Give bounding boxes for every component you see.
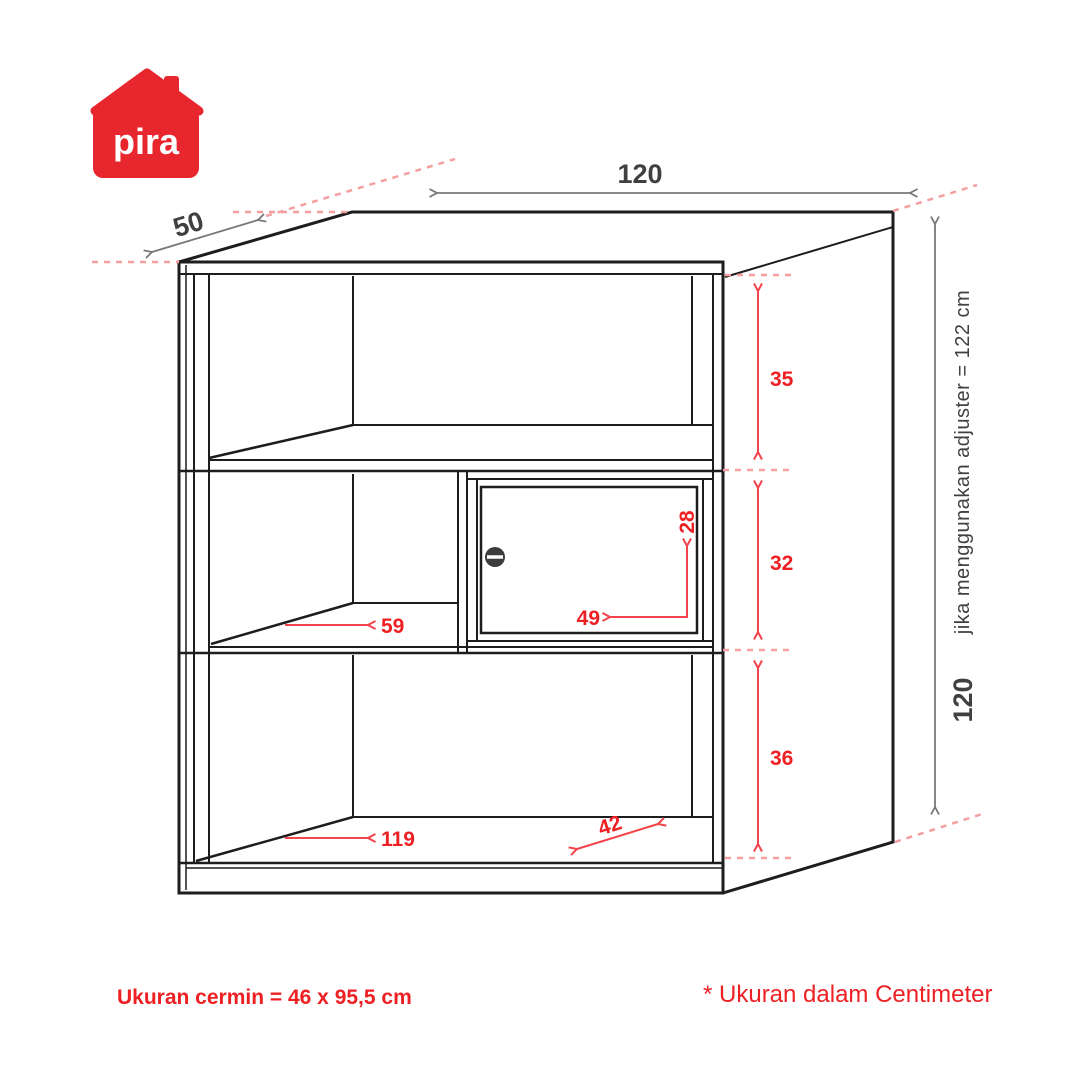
dimension-top-width: 120 xyxy=(437,159,910,193)
side-top-board-line xyxy=(725,227,893,277)
depth-arrow xyxy=(152,220,258,252)
unit-note: * Ukuran dalam Centimeter xyxy=(703,981,992,1009)
dimension-section-32: 32 xyxy=(758,488,793,632)
dimension-door: 49 28 xyxy=(577,510,699,630)
door-width-label: 49 xyxy=(577,607,600,630)
top-width-label: 120 xyxy=(617,159,662,189)
shelf-width-label: 59 xyxy=(381,615,404,638)
door-dimension-arrow xyxy=(610,546,687,617)
dash-back-top-right xyxy=(893,185,977,211)
extension-dashes xyxy=(92,159,982,858)
furniture-dimension-diagram: pira xyxy=(0,0,1081,1080)
pira-logo: pira xyxy=(93,73,199,178)
shelf1-diagonal xyxy=(209,425,353,458)
logo-text: pira xyxy=(113,121,180,162)
dash-back-bottom-right xyxy=(895,814,982,842)
cabinet-front-face xyxy=(179,262,723,893)
adjuster-note-label: jika menggunakan adjuster = 122 cm xyxy=(952,290,974,635)
mid-floor-diagonal xyxy=(211,603,353,644)
mirror-size-note: Ukuran cermin = 46 x 95,5 cm xyxy=(117,986,412,1010)
dimension-total-height: jika menggunakan adjuster = 122 cm 120 xyxy=(935,224,978,807)
dash-depth-extension xyxy=(266,159,455,216)
section-36-label: 36 xyxy=(770,747,793,770)
section-32-label: 32 xyxy=(770,552,793,575)
bottom-width-label: 119 xyxy=(381,828,415,851)
door-height-label: 28 xyxy=(676,510,699,534)
dimension-section-35: 35 xyxy=(758,291,794,452)
section-35-label: 35 xyxy=(770,368,794,391)
furniture-diagram-svg: pira xyxy=(0,0,1081,1080)
door-knob-icon xyxy=(485,547,505,567)
total-height-label: 120 xyxy=(948,677,978,722)
dimension-section-36: 36 xyxy=(758,668,793,844)
